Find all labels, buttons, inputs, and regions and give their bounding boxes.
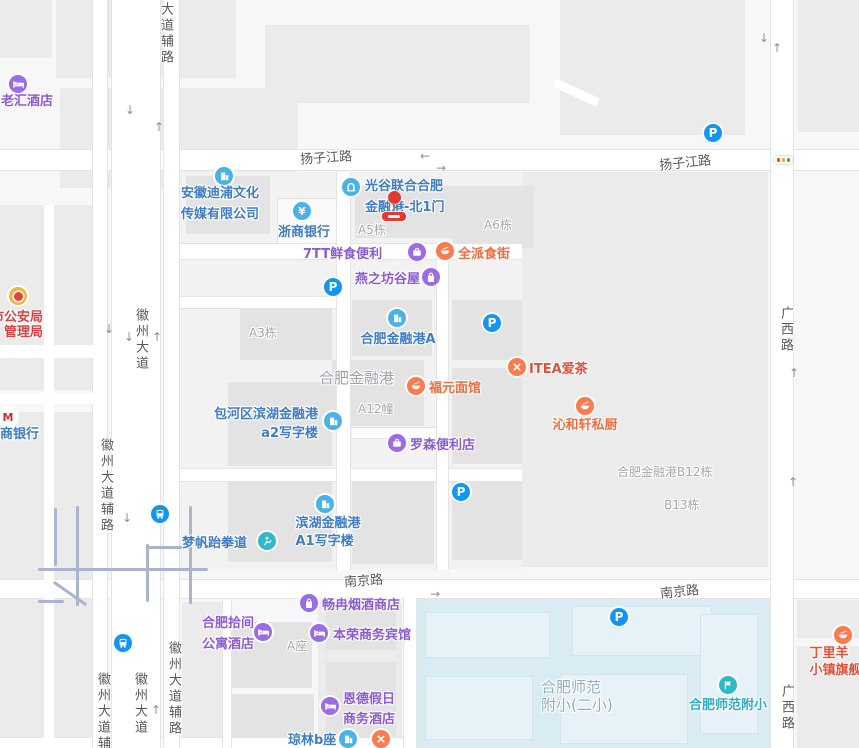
direction-arrow: ↓	[125, 104, 135, 116]
poi-label-line: B13栋	[664, 496, 700, 515]
sport-icon-mengfan-taekwondo[interactable]	[258, 532, 276, 550]
poi-label-area-hefei-jinronggang[interactable]: 合肥金融港	[319, 369, 394, 388]
poi-label-line: A5栋	[358, 221, 386, 240]
parking-letter: P	[709, 126, 718, 140]
poi-label-line: 燕之坊谷屋	[355, 270, 420, 289]
poi-label-line: 罗森便利店	[410, 436, 475, 455]
bag-icon-changran-tobacco-shop[interactable]	[300, 594, 318, 612]
hotel-icon-laohui-hotel[interactable]	[9, 75, 27, 93]
poi-label-line: 市公安局	[0, 310, 43, 325]
building-icon-hefei-jinronggang-a[interactable]	[388, 309, 406, 327]
direction-arrow: ↑	[772, 42, 782, 54]
building-icon-baohe-binhu-a2[interactable]	[324, 412, 342, 430]
traffic-light-icon	[774, 156, 793, 164]
poi-label-public-security-bureau[interactable]: 市公安局管理局	[0, 310, 43, 340]
school-icon-hefei-shifan-fuxiao[interactable]	[719, 676, 737, 694]
poi-label-line: 合肥师范	[541, 678, 613, 696]
poi-label-line: 合肥金融港B12栋	[617, 463, 713, 482]
poi-label-line: 公寓酒店	[202, 634, 254, 655]
poi-label-area-shifan-fuxiao-2[interactable]: 合肥师范附小(二小)	[541, 678, 613, 714]
poi-label-line: 浙商银行	[278, 223, 330, 242]
parking-icon[interactable]: P	[324, 278, 342, 296]
parking-icon[interactable]: P	[610, 608, 628, 626]
poi-label-lawson-store[interactable]: 罗森便利店	[410, 436, 475, 455]
poi-label-binhu-jinronggang-a1[interactable]: 滨湖金融港A1写字楼	[295, 515, 360, 551]
road	[178, 296, 344, 309]
road-label: 广西路	[777, 684, 796, 732]
bowl-icon-fuyuan-noodle[interactable]	[407, 377, 425, 395]
poi-label-line: A座	[287, 637, 307, 656]
police-icon-public-security-bureau[interactable]	[9, 287, 27, 305]
poi-label-quanpai-food-street[interactable]: 全派食街	[458, 245, 510, 264]
poi-label-line: 福元面馆	[429, 379, 481, 398]
poi-label-zheshang-bank[interactable]: 浙商银行	[278, 223, 330, 242]
building-footprint	[572, 606, 712, 656]
gate-icon-guanggu-north-gate-1[interactable]	[342, 178, 360, 196]
map-canvas[interactable]: 扬子江路扬子江路南京路南京路徽州大道辅路徽州大道徽州大道辅路徽州大道辅路徽州大道…	[0, 0, 859, 748]
rail-line	[76, 506, 79, 606]
road-label: 广西路	[776, 306, 795, 354]
poi-label-line: A6栋	[484, 216, 512, 235]
building-icon-binhu-jinronggang-a1[interactable]	[316, 495, 334, 513]
bag-icon-yanzhifang-guwu[interactable]	[422, 268, 440, 286]
direction-arrow: ↓	[122, 512, 132, 524]
city-block	[265, 25, 530, 103]
poi-label-line: 安徽迪浦文化	[181, 183, 259, 204]
poi-label-benrong-hotel[interactable]: 本荣商务宾馆	[333, 626, 411, 645]
poi-label-ende-holiday-hotel[interactable]: 恩德假日商务酒店	[343, 690, 395, 730]
bank-icon-zheshang-bank[interactable]: ¥	[293, 202, 311, 220]
poi-label-shijian-apartment-hotel[interactable]: 合肥拾间公寓酒店	[202, 613, 254, 655]
yuan-glyph: ¥	[298, 206, 306, 217]
poi-label-line: 琼林b座	[288, 731, 336, 748]
traffic-light-dot	[787, 158, 791, 162]
parking-icon[interactable]: P	[452, 483, 470, 501]
road	[436, 258, 449, 570]
poi-label-guanggu-north-gate-1[interactable]: 光谷联合合肥金融港-北1门	[365, 176, 444, 218]
poi-label-line: 梦帆跆拳道	[182, 534, 247, 553]
road-label: 徽州大道辅路	[156, 0, 175, 66]
poi-label-line: 合肥金融港A	[360, 330, 435, 349]
poi-label-bldg-a5[interactable]: A5栋	[358, 221, 386, 240]
poi-label-line: 本荣商务宾馆	[333, 626, 411, 645]
building-footprint	[700, 614, 758, 734]
building-footprint	[352, 478, 434, 564]
direction-arrow: ↓	[104, 323, 114, 335]
road-label: 徽州大道辅路	[93, 672, 112, 748]
poi-label-line: 包河区滨湖金融港	[214, 405, 318, 424]
poi-label-bldg-b13[interactable]: B13栋	[664, 496, 700, 515]
hotel-icon-shijian-apartment-hotel[interactable]	[254, 623, 272, 641]
direction-arrow: ↑	[788, 476, 798, 488]
dish-icon-quanpai-food-street[interactable]	[436, 242, 454, 260]
fork-icon-itea-aicha[interactable]	[508, 358, 526, 376]
direction-arrow: →	[430, 588, 440, 600]
case-icon-7tt-fresh-store[interactable]	[408, 243, 426, 261]
building-footprint	[425, 612, 550, 658]
city-block	[0, 0, 52, 58]
direction-arrow: ↑	[152, 331, 162, 343]
poi-label-line: 小镇旗舰店	[809, 662, 859, 679]
poi-label-line: 商务酒店	[343, 710, 395, 730]
poi-label-dingliyang-flagship[interactable]: 丁里羊小镇旗舰店	[809, 645, 859, 679]
poi-label-mengfan-taekwondo[interactable]: 梦帆跆拳道	[182, 534, 247, 553]
parking-letter: P	[615, 610, 624, 624]
poi-label-line: 附小(二小)	[541, 696, 613, 714]
parking-icon[interactable]: P	[704, 124, 722, 142]
poi-label-line: ITEA爱茶	[529, 360, 588, 379]
poi-label-laohui-hotel[interactable]: 老汇酒店	[1, 92, 53, 111]
poi-label-line: 恩德假日	[343, 690, 395, 710]
poi-label-line: 丁里羊	[809, 645, 859, 662]
building-footprint	[425, 676, 533, 740]
road	[403, 598, 417, 748]
transit-station-icon[interactable]	[114, 634, 132, 652]
parking-letter: P	[457, 485, 466, 499]
direction-arrow: ↑	[151, 704, 161, 716]
parking-icon[interactable]: P	[483, 314, 501, 332]
poi-label-qinhexuan-kitchen[interactable]: 沁和轩私厨	[552, 416, 617, 435]
poi-label-line: 7TT鲜食便利	[303, 245, 382, 264]
road-label: 徽州大道	[131, 308, 150, 372]
poi-label-line: 传媒有限公司	[181, 204, 259, 225]
direction-arrow: ↑	[789, 367, 799, 379]
poi-label-fuyuan-noodle[interactable]: 福元面馆	[429, 379, 481, 398]
poi-label-bldg-a3[interactable]: A3栋	[249, 324, 277, 343]
road-label: 徽州大道辅路	[96, 438, 115, 534]
rail-line	[38, 568, 208, 571]
poi-label-line: 合肥师范附小	[689, 696, 767, 715]
road-label: 南京路	[343, 569, 383, 591]
poi-label-changran-tobacco-shop[interactable]: 畅冉烟酒商店	[322, 596, 400, 615]
hotel-icon-benrong-hotel[interactable]	[310, 624, 328, 642]
poi-label-yanzhifang-guwu[interactable]: 燕之坊谷屋	[355, 270, 420, 289]
poi-label-anhui-dipu-media[interactable]: 安徽迪浦文化传媒有限公司	[181, 183, 259, 225]
traffic-light-dot	[782, 158, 786, 162]
marker-gate-slot	[388, 215, 400, 218]
bowl-icon-qinhexuan-kitchen[interactable]	[576, 397, 594, 415]
direction-arrow: ←	[420, 150, 430, 162]
poi-label-bldg-a6[interactable]: A6栋	[484, 216, 512, 235]
road-label: 南京路	[659, 579, 700, 602]
transit-station-icon[interactable]	[151, 505, 169, 523]
road-label: 徽州大道辅路	[164, 641, 183, 737]
rail-line	[146, 544, 149, 602]
poi-label-line: 管理局	[0, 325, 43, 340]
poi-label-line: A1写字楼	[295, 533, 360, 551]
poi-label-line: 沁和轩私厨	[552, 416, 617, 435]
poi-label-line: A12幢	[358, 400, 393, 419]
fork-icon-restaurant-near-qionglin[interactable]	[372, 730, 390, 748]
road	[44, 205, 54, 738]
road-label: 徽州大道	[130, 672, 149, 736]
poi-label-baohe-binhu-a2[interactable]: 包河区滨湖金融港a2写字楼	[214, 405, 318, 443]
marker-gate-bar	[382, 212, 406, 221]
poi-label-line: 合肥拾间	[202, 613, 254, 634]
building-icon-qionglin-b-zuo[interactable]	[339, 730, 357, 748]
poi-label-bldg-a12[interactable]: A12幢	[358, 400, 393, 419]
poi-label-line: 合肥金融港	[319, 369, 394, 388]
rail-line	[54, 508, 57, 566]
poi-label-itea-aicha[interactable]: ITEA爱茶	[529, 360, 588, 379]
city-block	[560, 0, 745, 135]
direction-arrow: →	[436, 162, 446, 174]
traffic-light-dot	[777, 158, 781, 162]
bowl-icon-dingliyang-flagship[interactable]	[834, 626, 852, 644]
poi-label-line: A3栋	[249, 324, 277, 343]
poi-label-line: 光谷联合合肥	[365, 176, 444, 197]
poi-label-bldg-a-zuo[interactable]: A座	[287, 637, 307, 656]
poi-label-line: 全派食街	[458, 245, 510, 264]
road	[92, 0, 108, 748]
road	[163, 0, 180, 748]
poi-label-cmb-bank[interactable]: 商银行	[0, 425, 39, 444]
road-label: 扬子江路	[299, 145, 352, 168]
poi-label-hefei-jinronggang-a[interactable]: 合肥金融港A	[360, 330, 435, 349]
poi-label-hefei-shifan-fuxiao[interactable]: 合肥师范附小	[689, 696, 767, 715]
poi-label-line: 商银行	[0, 425, 39, 444]
parking-letter: P	[329, 280, 338, 294]
poi-label-line: 畅冉烟酒商店	[322, 596, 400, 615]
poi-label-qionglin-b-zuo[interactable]: 琼林b座	[288, 731, 336, 748]
rail-line	[189, 506, 192, 604]
poi-label-line: 滨湖金融港	[295, 515, 360, 533]
marker-head	[388, 191, 401, 204]
poi-label-line: 老汇酒店	[1, 92, 53, 111]
parking-letter: P	[488, 316, 497, 330]
rail-line	[38, 600, 64, 603]
poi-label-bldg-b12[interactable]: 合肥金融港B12栋	[617, 463, 713, 482]
direction-arrow: ↓	[759, 32, 769, 44]
hotel-icon-ende-holiday-hotel[interactable]	[321, 697, 339, 715]
cmb-logo: M	[3, 412, 14, 423]
case-icon-lawson-store[interactable]	[388, 434, 406, 452]
poi-label-line: a2写字楼	[214, 424, 318, 443]
city-block	[798, 0, 859, 132]
poi-label-7tt-fresh-store[interactable]: 7TT鲜食便利	[303, 245, 382, 264]
direction-arrow: ↑	[154, 121, 164, 133]
